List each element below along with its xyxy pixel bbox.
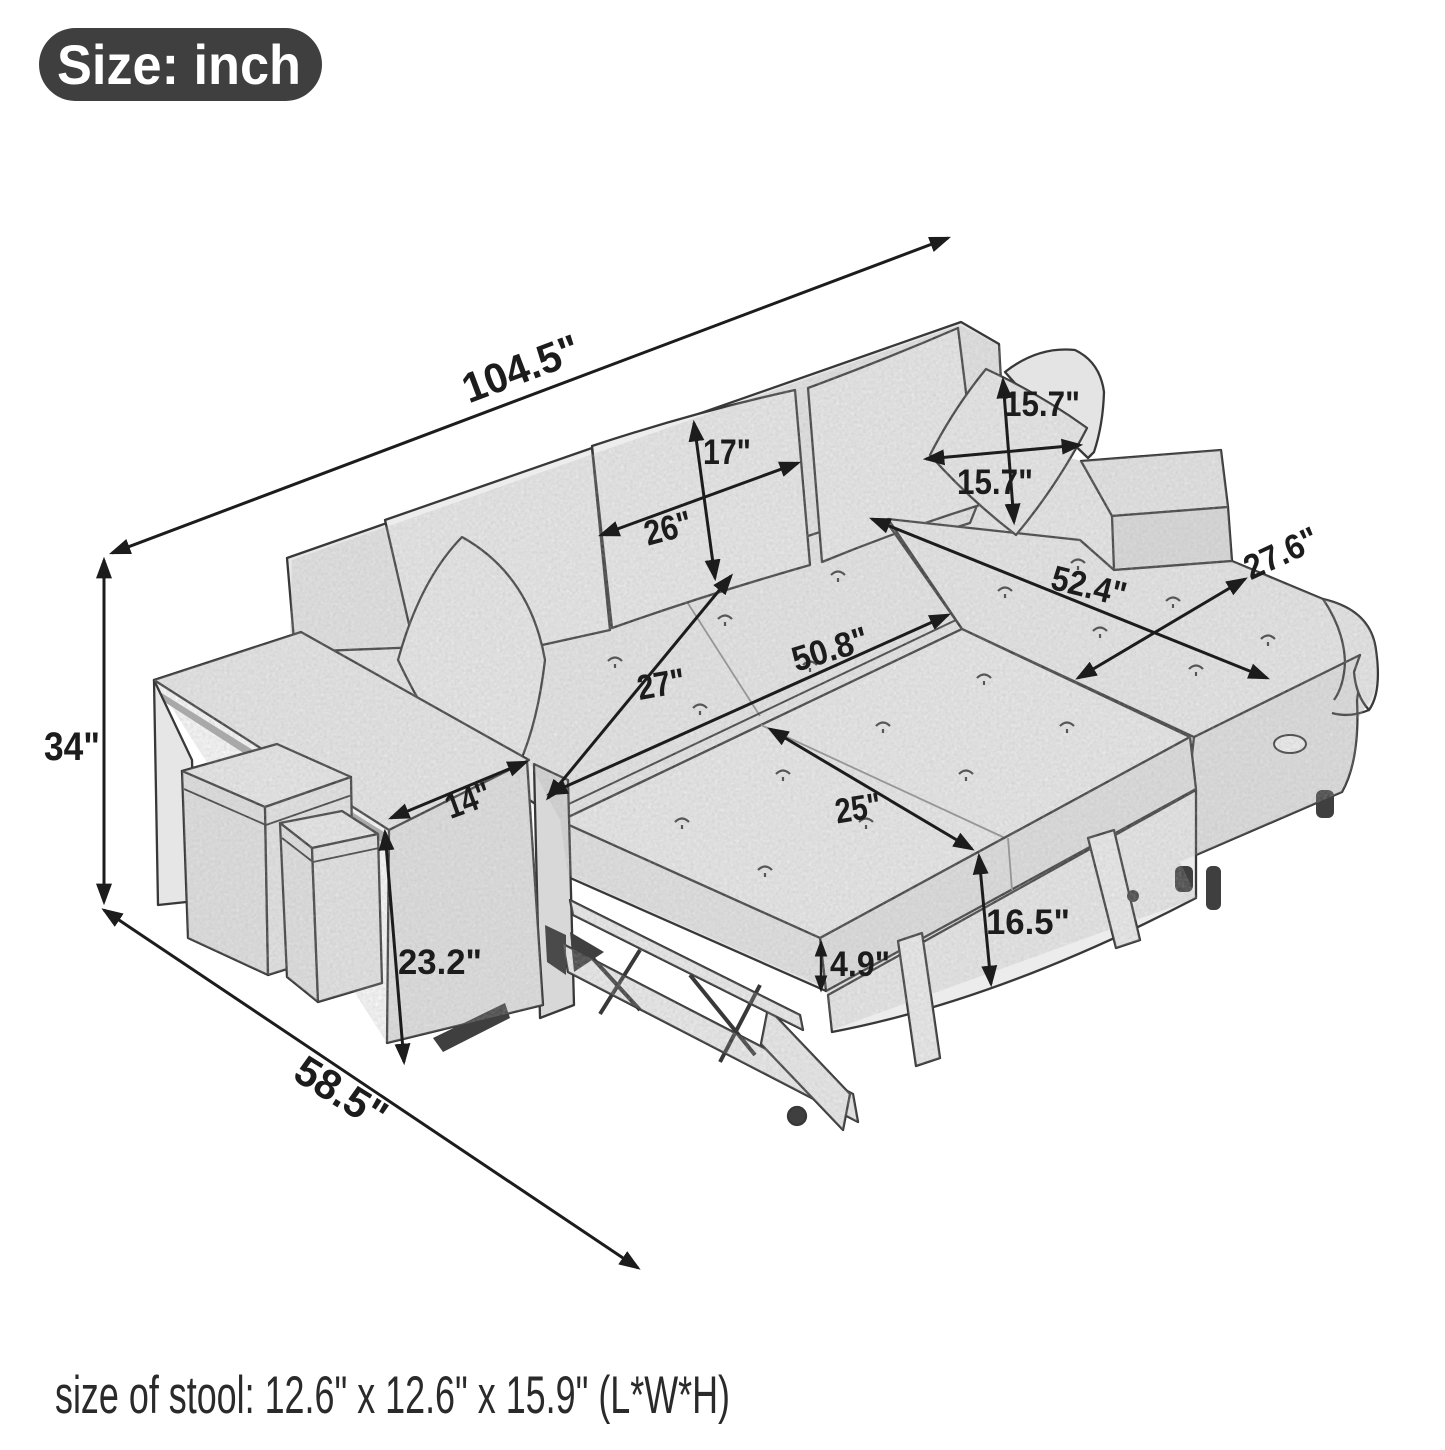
svg-text:27": 27" — [634, 661, 688, 708]
svg-text:15.7": 15.7" — [1004, 385, 1080, 424]
svg-text:15.7": 15.7" — [957, 463, 1033, 502]
svg-text:Size: inch: Size: inch — [57, 33, 301, 96]
svg-text:25": 25" — [832, 786, 884, 832]
svg-text:23.2": 23.2" — [398, 943, 482, 982]
svg-text:34": 34" — [44, 725, 100, 769]
svg-text:17": 17" — [703, 433, 751, 472]
svg-text:4.9": 4.9" — [830, 945, 890, 984]
svg-text:16.5": 16.5" — [986, 903, 1070, 942]
svg-text:size of stool: 12.6" x 12.6" x: size of stool: 12.6" x 12.6" x 15.9" (L*… — [55, 1366, 730, 1425]
